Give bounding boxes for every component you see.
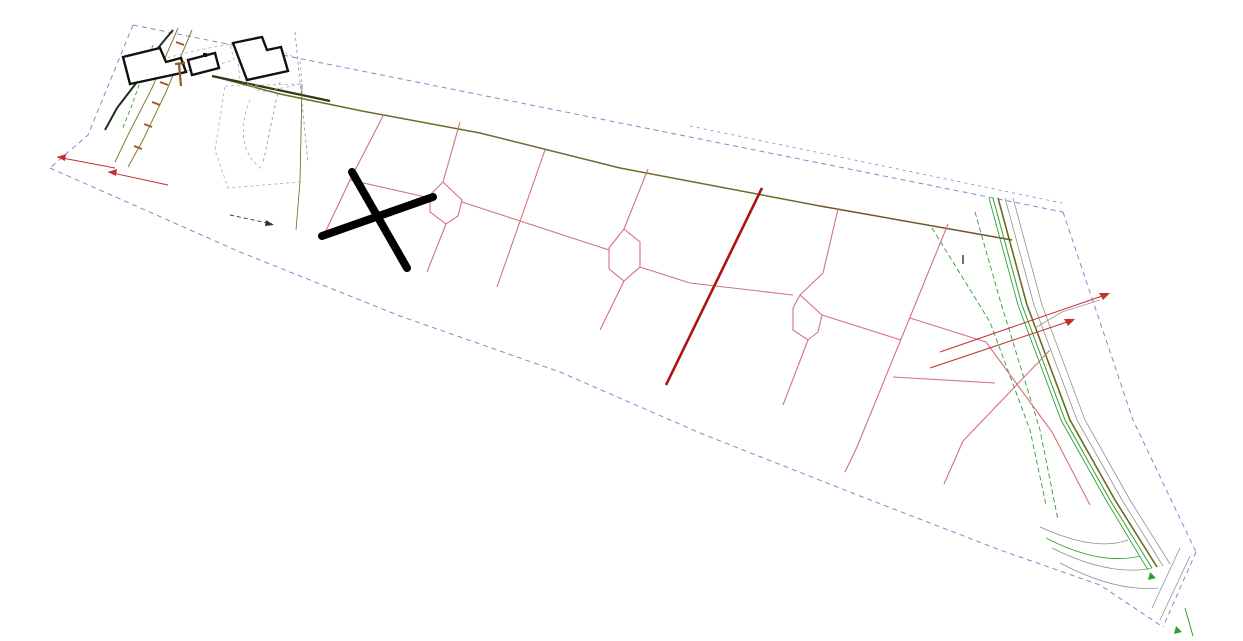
hexagon-plot-10: [609, 229, 640, 281]
line-p2: [963, 350, 1050, 441]
line-s4b: [910, 318, 986, 342]
line-s4a: [822, 315, 901, 340]
line-p3: [944, 441, 963, 484]
arrows: [57, 154, 1110, 368]
parcel2-west-edge: [296, 84, 302, 230]
hexagon-plot-5: [430, 182, 462, 224]
boundary-corner: [1163, 552, 1196, 627]
line-c: [497, 150, 545, 287]
orchard-outline: [215, 84, 302, 188]
boundary-right: [1063, 212, 1196, 552]
map-canvas: [0, 0, 1243, 641]
road-east: [932, 198, 1170, 570]
land-plot-map: [0, 0, 1243, 641]
parcel-boundaries: [323, 116, 1090, 505]
boundary-sold-section: [666, 188, 762, 385]
building: [233, 37, 288, 80]
road-junction: [1040, 527, 1193, 636]
black-arrow-head: [265, 220, 274, 226]
strip-top-edge: [212, 76, 1012, 240]
line-f: [783, 209, 838, 405]
boundary-left: [50, 25, 133, 168]
boundary-inner-2: [263, 82, 280, 163]
red-arrow-head: [108, 169, 117, 176]
hexagon-plot-15: [793, 295, 822, 340]
line-p4: [1052, 432, 1090, 505]
green-mark: [1174, 626, 1182, 634]
line-g: [845, 224, 948, 472]
orchard-inner: [243, 100, 264, 170]
outer-boundary: [50, 25, 1196, 627]
line-p1: [986, 342, 1052, 432]
northwest-detail: [105, 30, 302, 230]
green-mark: [1148, 572, 1156, 580]
building: [123, 48, 186, 84]
survey-point: [203, 53, 207, 57]
line-s5: [893, 377, 995, 383]
line-s2: [462, 202, 609, 250]
red-arrow-head: [57, 154, 66, 161]
